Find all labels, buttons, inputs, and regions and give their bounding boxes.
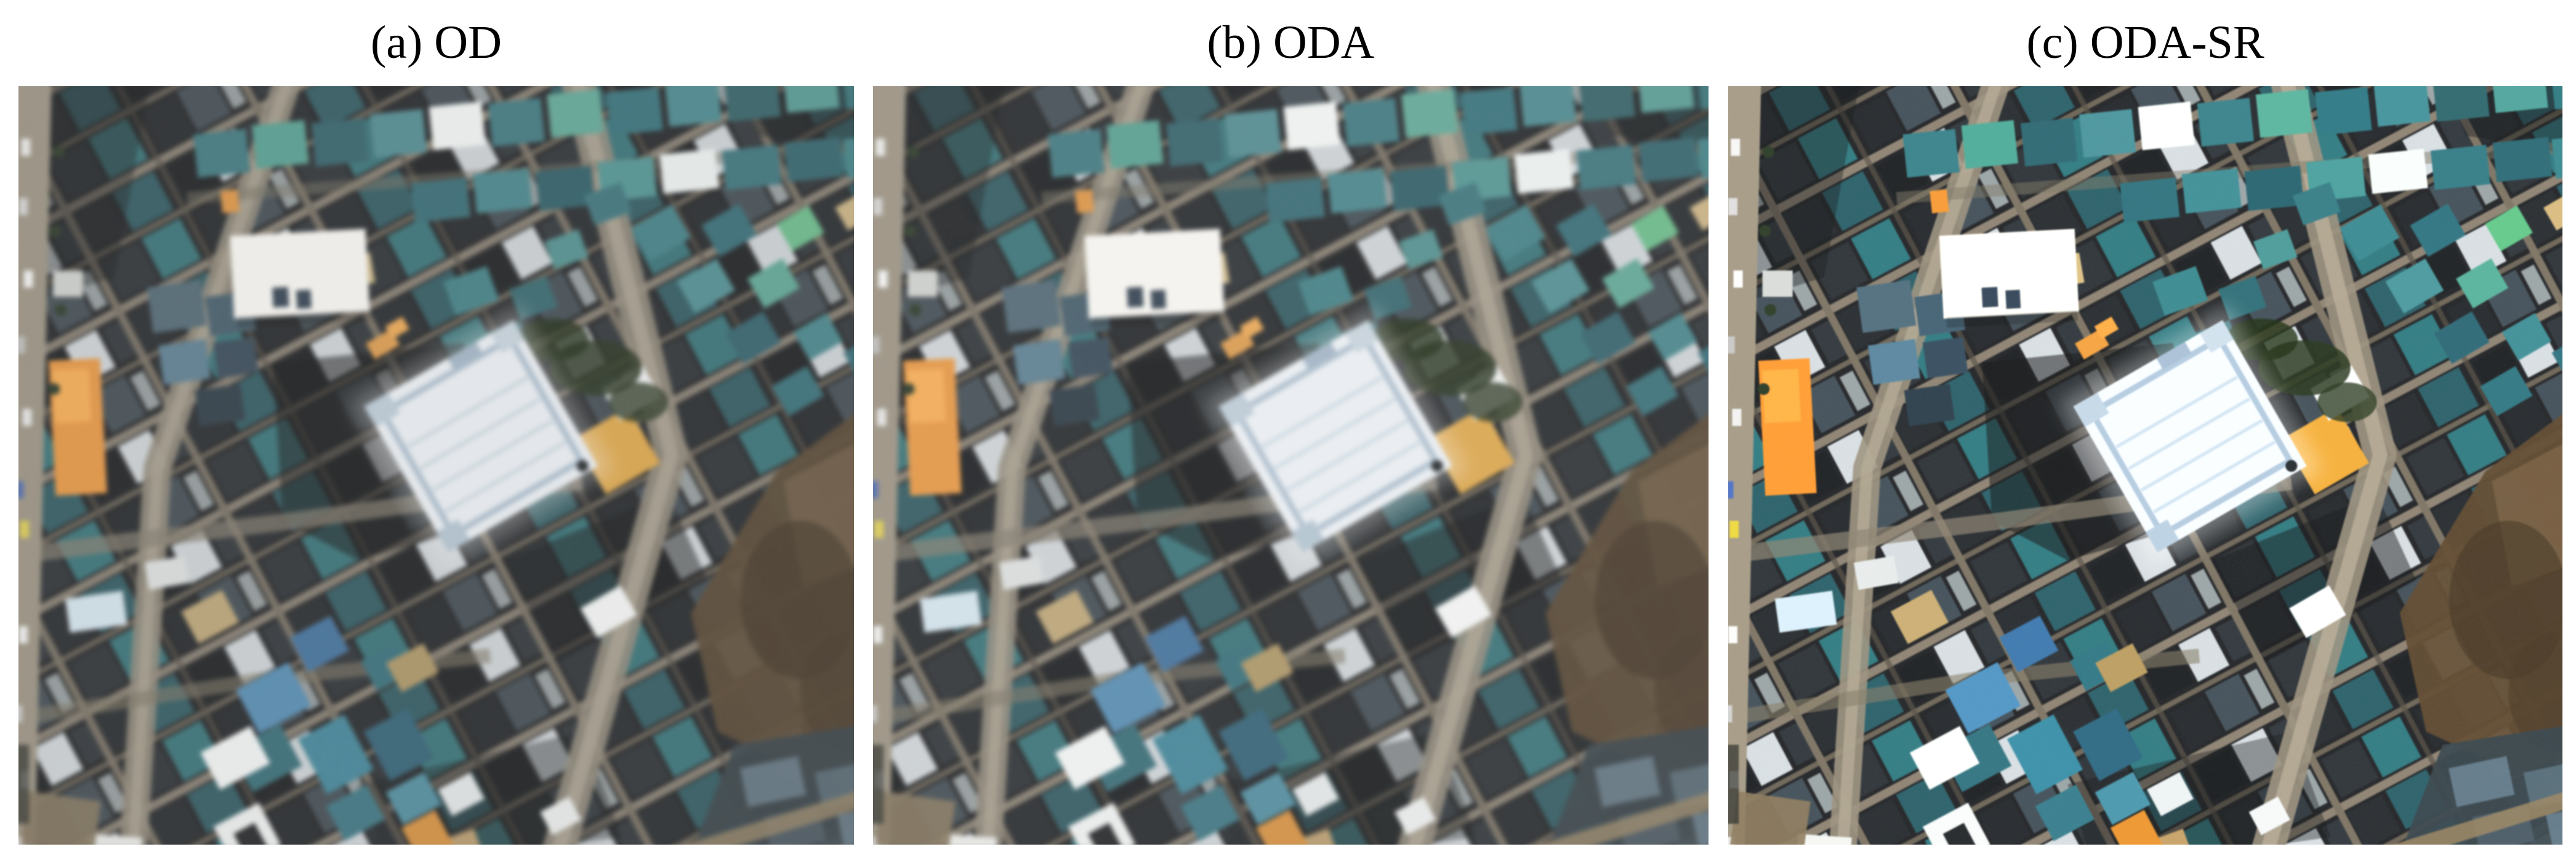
caption-oda: (b) ODA xyxy=(873,9,1709,76)
satellite-image-od xyxy=(18,86,854,845)
panel-oda-sr-image xyxy=(1728,86,2562,845)
figure: (a) OD (b) ODA (c) ODA-SR xyxy=(0,0,2576,860)
satellite-image-oda xyxy=(873,86,1709,845)
caption-oda-sr: (c) ODA-SR xyxy=(1728,9,2562,76)
panel-oda-image xyxy=(873,86,1709,845)
caption-od: (a) OD xyxy=(18,9,854,76)
satellite-image-oda-sr xyxy=(1728,86,2562,845)
panel-od-image xyxy=(18,86,854,845)
